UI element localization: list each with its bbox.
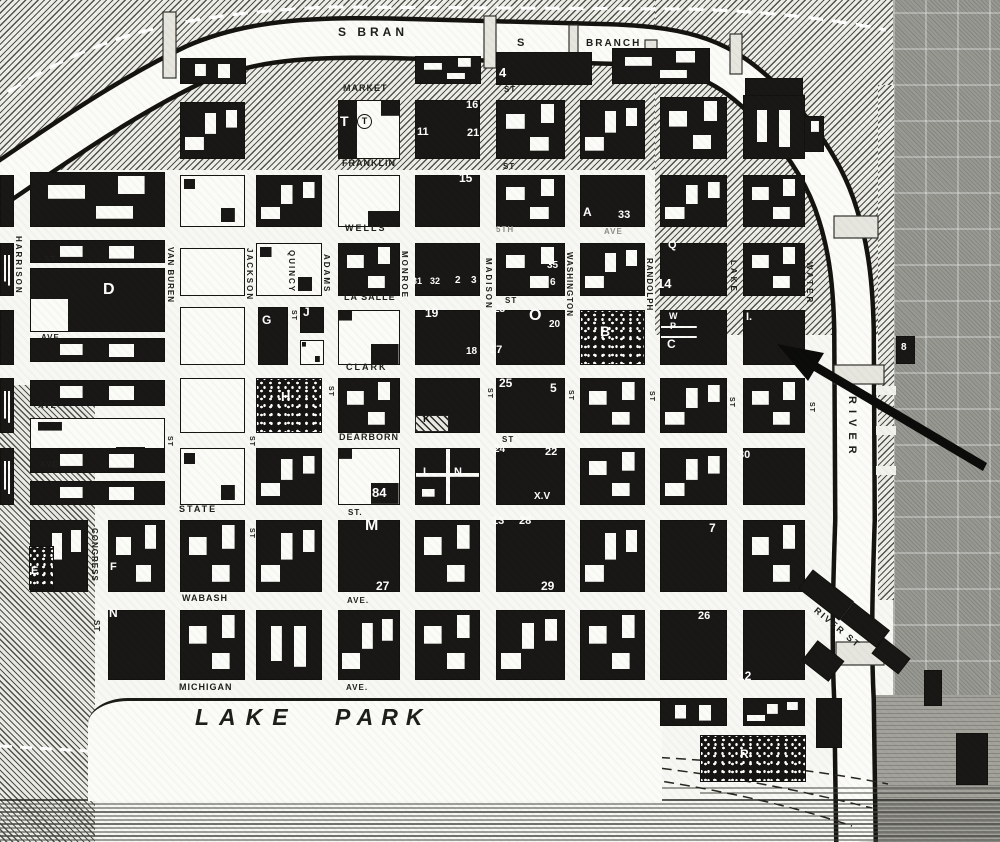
annotation-layer [0,0,1000,842]
pointer-arrow [777,344,987,471]
historic-chicago-map: S BRANSBRANCHMARKETSTFRANKLINSTWELLS5THA… [0,0,1000,842]
